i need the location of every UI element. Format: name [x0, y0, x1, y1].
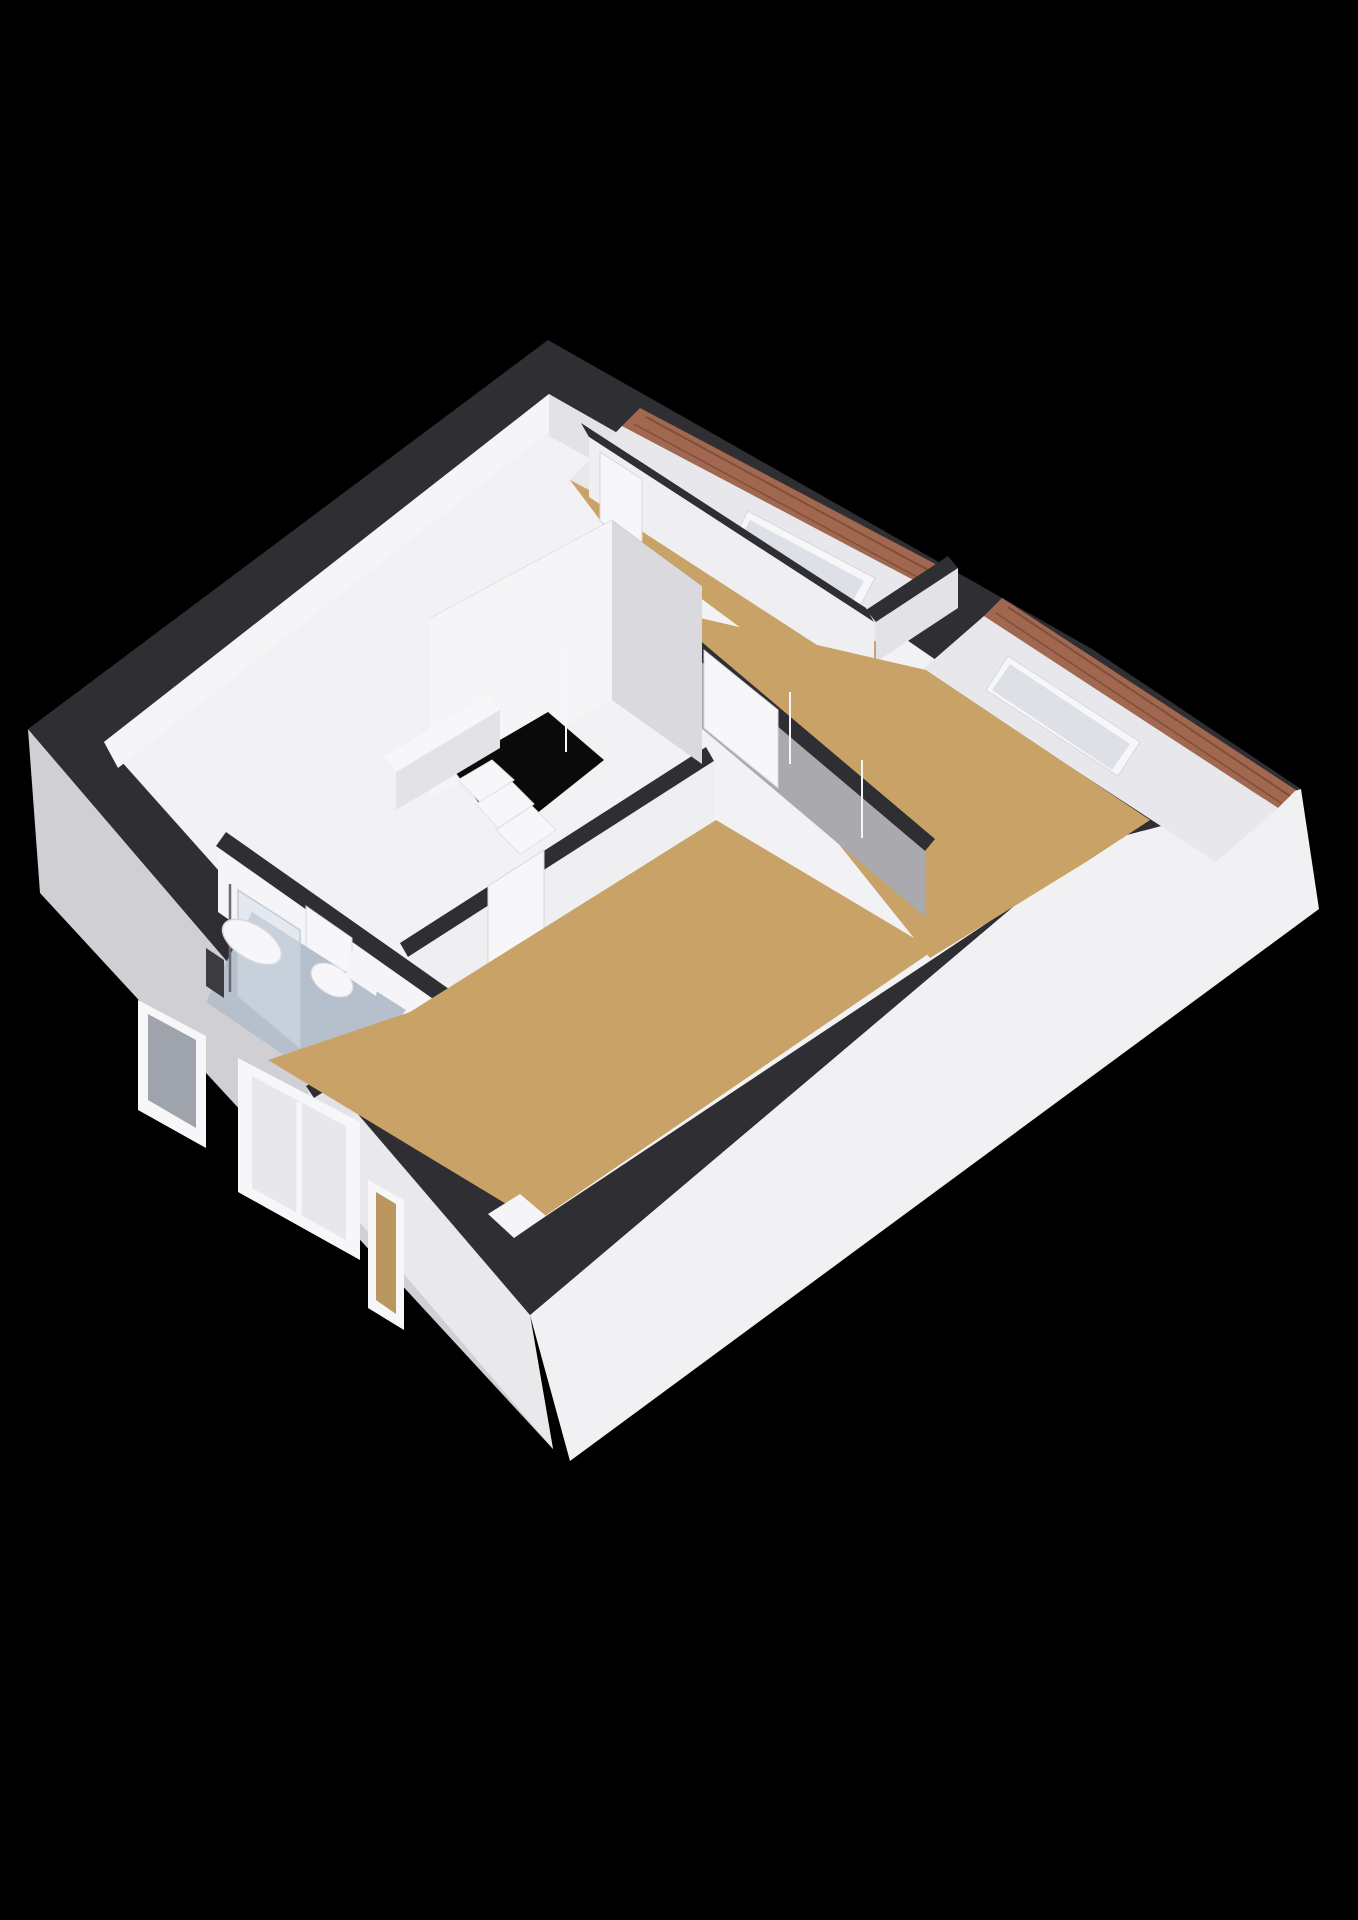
dormer-window2-pane: [376, 1192, 396, 1314]
floor-plan-3d-render: [0, 0, 1358, 1920]
floor-plan-svg: [0, 0, 1358, 1920]
